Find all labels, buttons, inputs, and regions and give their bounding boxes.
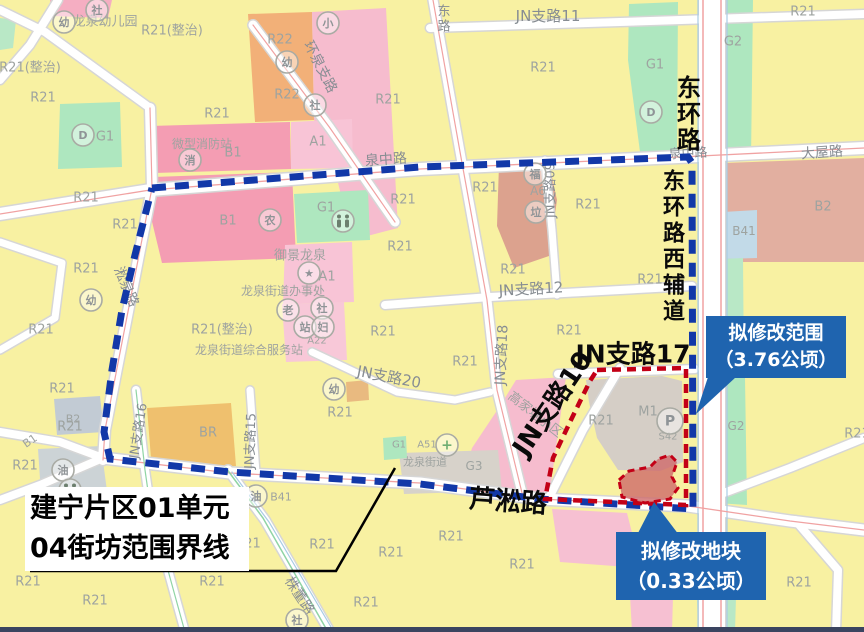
restroom-icon bbox=[332, 210, 354, 232]
map-label: JN支路15 bbox=[241, 413, 259, 471]
map-label: B41 bbox=[732, 224, 756, 238]
parcel bbox=[630, 595, 673, 632]
svg-text:油: 油 bbox=[58, 463, 69, 477]
map-label: R21 bbox=[112, 218, 138, 233]
map-label: JN支路11 bbox=[515, 7, 581, 25]
map-label: R21 bbox=[49, 382, 75, 397]
svg-text:福: 福 bbox=[529, 167, 541, 181]
callout-modify-scope-value: （3.76公顷） bbox=[706, 347, 846, 374]
map-label: 大屋路 bbox=[800, 144, 843, 163]
svg-text:油: 油 bbox=[251, 489, 262, 503]
map-label: 路 bbox=[437, 19, 450, 35]
svg-text:消: 消 bbox=[185, 153, 196, 167]
map-label: R21 bbox=[390, 193, 416, 208]
map-label: R21 bbox=[786, 576, 812, 591]
map-label: R21 bbox=[73, 191, 99, 206]
map-label: R21 bbox=[438, 530, 464, 545]
svg-text:★: ★ bbox=[304, 267, 314, 280]
map-label: R21 bbox=[82, 594, 108, 609]
svg-text:P: P bbox=[665, 414, 675, 430]
map-label: 龙泉街道办事处 bbox=[241, 283, 325, 298]
map-label: R21 bbox=[28, 323, 54, 338]
callout-modify-plot: 拟修改地块 （0.33公顷） bbox=[616, 532, 766, 600]
svg-text:垃: 垃 bbox=[531, 205, 542, 219]
map-label: 环 bbox=[663, 196, 685, 221]
svg-text:幼: 幼 bbox=[282, 55, 293, 69]
map-bottom-border bbox=[0, 627, 864, 632]
svg-text:幼: 幼 bbox=[86, 293, 97, 307]
map-label: A1 bbox=[309, 135, 326, 150]
svg-text:幼: 幼 bbox=[59, 15, 70, 29]
map-label: B2 bbox=[814, 200, 831, 215]
map-label: G1 bbox=[96, 130, 114, 145]
map-label: R21 bbox=[353, 596, 379, 611]
map-label: R22 bbox=[274, 88, 300, 103]
planning-map: R21R21R21R21R21R21R21R21R21R21R21R21R21R… bbox=[0, 0, 864, 632]
svg-text:农: 农 bbox=[264, 213, 276, 227]
map-label: 微型消防站 bbox=[172, 136, 232, 151]
map-label: 东 bbox=[437, 5, 450, 20]
map-label: R21 bbox=[472, 181, 498, 196]
callout-modify-scope: 拟修改范围 （3.76公顷） bbox=[706, 316, 846, 378]
svg-text:D: D bbox=[646, 106, 655, 119]
svg-text:+: + bbox=[441, 438, 453, 454]
map-label: R21 bbox=[309, 538, 335, 553]
map-label: 东 bbox=[663, 169, 685, 195]
svg-text:社: 社 bbox=[309, 98, 321, 112]
map-label: R21 bbox=[375, 93, 401, 108]
map-label: JN支路12 bbox=[497, 278, 564, 299]
parcel bbox=[294, 190, 370, 243]
map-label: R21 bbox=[327, 406, 353, 421]
map-label: R21 bbox=[30, 91, 56, 106]
map-label: 东 bbox=[677, 74, 701, 102]
map-label: 龙泉街道 bbox=[403, 455, 447, 469]
map-label: R21 bbox=[588, 414, 614, 429]
map-label: 御景龙泉 bbox=[274, 248, 326, 264]
map-label: R21 bbox=[530, 61, 556, 76]
map-label: R21 bbox=[509, 558, 535, 573]
svg-text:小: 小 bbox=[322, 16, 334, 30]
map-label: R21 bbox=[378, 546, 404, 561]
map-label: R21 bbox=[844, 427, 864, 442]
map-label: G2 bbox=[728, 419, 745, 433]
map-label: BR bbox=[199, 426, 217, 441]
map-label: R21 bbox=[790, 5, 816, 20]
map-label: 西 bbox=[663, 248, 685, 273]
map-label: G2 bbox=[724, 35, 742, 50]
map-label: R22 bbox=[267, 33, 293, 48]
map-label: 道 bbox=[663, 299, 685, 325]
map-label: 辅 bbox=[663, 273, 685, 299]
svg-text:社: 社 bbox=[291, 613, 303, 627]
parcel bbox=[346, 380, 369, 402]
boundary-label-line1: 建宁片区01单元 bbox=[30, 489, 249, 529]
map-label: 路 bbox=[677, 126, 702, 154]
svg-text:站: 站 bbox=[300, 320, 311, 334]
map-label: 芦淞路 bbox=[468, 483, 549, 519]
map-label: R21 bbox=[452, 355, 478, 370]
map-label: G1 bbox=[392, 440, 406, 451]
map-label: B2 bbox=[66, 413, 81, 426]
map-label: G3 bbox=[466, 459, 483, 473]
map-label: G1 bbox=[317, 201, 335, 216]
map-label: R21 bbox=[387, 240, 413, 255]
map-label: R21 bbox=[12, 459, 38, 474]
map-label: 环 bbox=[677, 100, 701, 128]
map-label: B41 bbox=[270, 491, 292, 504]
map-label: R21 bbox=[204, 107, 230, 122]
map-label: 龙泉街道综合服务站 bbox=[195, 342, 303, 357]
map-label: R21 bbox=[370, 325, 396, 340]
map-label: R21 bbox=[15, 575, 41, 590]
map-label: G1 bbox=[646, 58, 664, 73]
map-label: R21 bbox=[500, 263, 526, 278]
map-label: R21 bbox=[199, 575, 225, 590]
map-label: R21(整治) bbox=[0, 61, 61, 76]
map-label: R21(整治) bbox=[141, 24, 203, 39]
callout-modify-scope-title: 拟修改范围 bbox=[706, 320, 846, 347]
boundary-label-box: 建宁片区01单元 04街坊范围界线 bbox=[25, 487, 249, 571]
svg-text:幼: 幼 bbox=[329, 382, 340, 396]
svg-text:社: 社 bbox=[316, 301, 328, 315]
map-label: R21 bbox=[556, 324, 582, 339]
svg-text:妇: 妇 bbox=[317, 320, 329, 334]
callout-modify-plot-title: 拟修改地块 bbox=[616, 536, 766, 566]
map-label: A51 bbox=[417, 440, 437, 451]
map-label: JN支路18 bbox=[492, 324, 511, 386]
map-label: A1 bbox=[318, 270, 335, 285]
svg-text:老: 老 bbox=[282, 303, 294, 317]
svg-text:社: 社 bbox=[91, 3, 103, 17]
map-label: R21 bbox=[637, 273, 663, 288]
map-label: R21(整治) bbox=[191, 323, 253, 338]
boundary-label-line2: 04街坊范围界线 bbox=[30, 529, 249, 569]
svg-text:D: D bbox=[78, 129, 87, 142]
map-label: R21 bbox=[575, 198, 601, 213]
map-label: B1 bbox=[219, 214, 236, 229]
map-label: B1 bbox=[224, 146, 241, 161]
map-label: M1 bbox=[638, 405, 658, 420]
map-label: 路 bbox=[663, 221, 686, 247]
callout-modify-plot-value: （0.33公顷） bbox=[616, 566, 766, 596]
map-label: R21 bbox=[73, 262, 99, 277]
